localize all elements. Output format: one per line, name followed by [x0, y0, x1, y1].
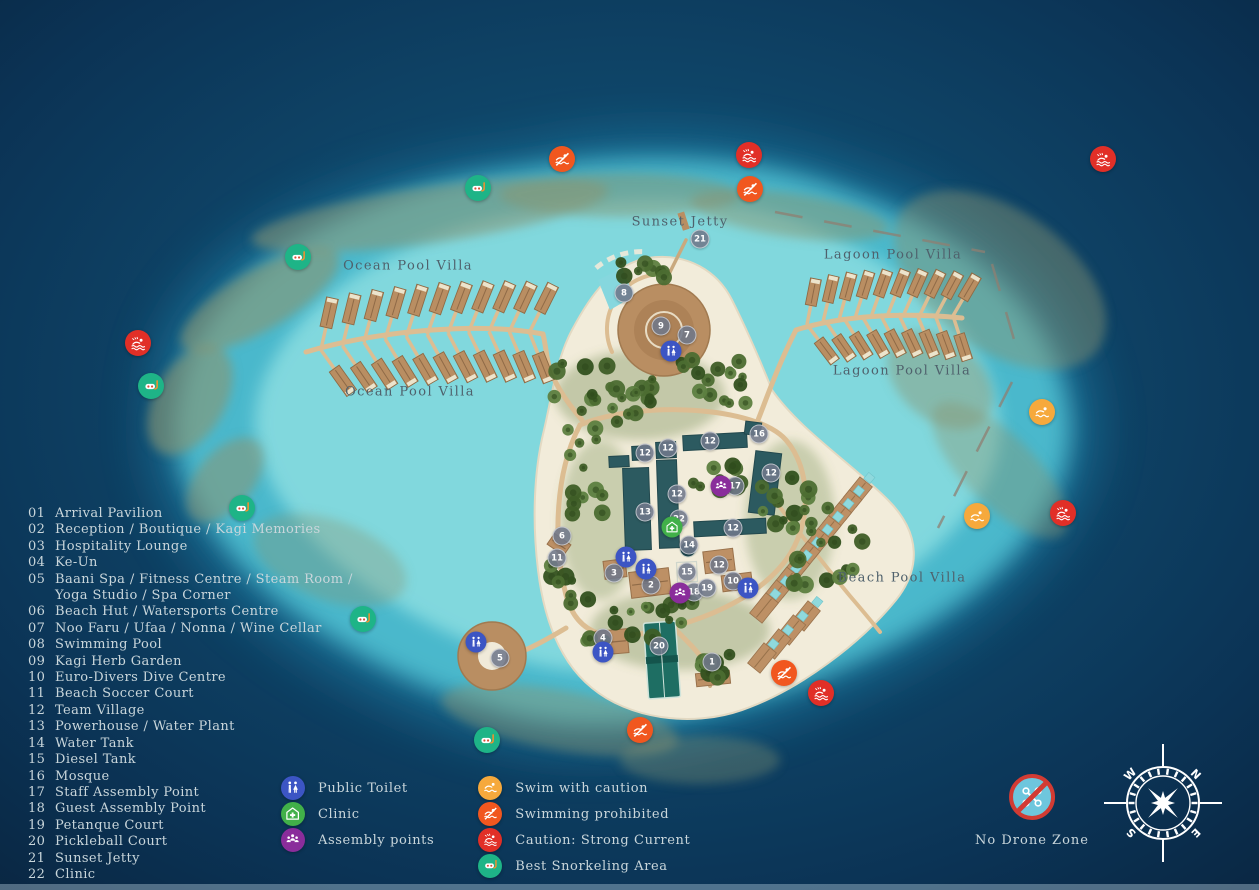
assembly-icon — [281, 828, 305, 852]
legend-item: 14Water Tank — [28, 736, 353, 752]
legend-item-label: Noo Faru / Ufaa / Nonna / Wine Cellar — [55, 621, 322, 637]
snorkel-icon — [350, 606, 376, 632]
legend-item: 04Ke-Un — [28, 555, 353, 571]
snorkel-icon — [138, 373, 164, 399]
toilet-icon — [661, 341, 682, 362]
legend-item-label: Beach Soccer Court — [55, 686, 194, 702]
legend-item-number: 03 — [28, 539, 55, 555]
current-icon — [125, 330, 151, 356]
map-marker-19: 19 — [698, 579, 717, 598]
legend-item-number: 11 — [28, 686, 55, 702]
prohibited-icon — [478, 802, 502, 826]
current-icon — [736, 142, 762, 168]
legend-item-label: Baani Spa / Fitness Centre / Steam Room … — [55, 572, 353, 605]
clinic-icon — [281, 802, 305, 826]
map-label: Ocean Pool Villa — [345, 385, 475, 400]
snorkel-icon — [465, 175, 491, 201]
assembly-icon — [670, 583, 691, 604]
map-marker-20: 20 — [650, 637, 669, 656]
legend-item-label: Powerhouse / Water Plant — [55, 719, 235, 735]
legend-item-number: 05 — [28, 572, 55, 605]
legend-item-number: 14 — [28, 736, 55, 752]
legend-item-label: Team Village — [55, 703, 145, 719]
legend-item-number: 06 — [28, 604, 55, 620]
prohibited-icon — [737, 176, 763, 202]
current-icon — [808, 680, 834, 706]
legend-item: 01Arrival Pavilion — [28, 506, 353, 522]
map-marker-12: 12 — [701, 432, 720, 451]
prohibited-icon — [627, 717, 653, 743]
legend-item: 05Baani Spa / Fitness Centre / Steam Roo… — [28, 572, 353, 605]
key-item-label: Assembly points — [318, 833, 434, 848]
map-label: Lagoon Pool Villa — [824, 248, 962, 263]
legend-item-label: Arrival Pavilion — [55, 506, 163, 522]
toilet-icon — [636, 559, 657, 580]
legend-item: 08Swimming Pool — [28, 637, 353, 653]
map-marker-11: 11 — [548, 549, 567, 568]
legend-item-label: Sunset Jetty — [55, 851, 140, 867]
map-marker-12: 12 — [762, 464, 781, 483]
legend-item-label: Beach Hut / Watersports Centre — [55, 604, 279, 620]
legend-item-number: 18 — [28, 801, 55, 817]
toilet-icon — [466, 632, 487, 653]
legend-item-label: Pickleball Court — [55, 834, 167, 850]
legend-item-number: 04 — [28, 555, 55, 571]
legend-item-label: Swimming Pool — [55, 637, 162, 653]
map-marker-7: 7 — [678, 326, 697, 345]
current-icon — [1090, 146, 1116, 172]
key-item-assembly: Assembly points — [281, 828, 434, 852]
legend-item-number: 07 — [28, 621, 55, 637]
legend-item: 10Euro-Divers Dive Centre — [28, 670, 353, 686]
no-drone-icon — [1009, 774, 1055, 820]
assembly-icon — [711, 476, 732, 497]
map-marker-1: 1 — [703, 653, 722, 672]
key-column: Swim with cautionSwimming prohibitedCaut… — [478, 776, 690, 878]
key-item-label: Clinic — [318, 807, 360, 822]
map-marker-12: 12 — [724, 519, 743, 538]
legend-item-label: Hospitality Lounge — [55, 539, 188, 555]
legend-item-number: 10 — [28, 670, 55, 686]
key-column: Public ToiletClinicAssembly points — [281, 776, 434, 878]
legend-item-number: 16 — [28, 769, 55, 785]
legend-item-number: 01 — [28, 506, 55, 522]
map-marker-13: 13 — [636, 503, 655, 522]
legend-item: 11Beach Soccer Court — [28, 686, 353, 702]
map-marker-16: 16 — [750, 425, 769, 444]
legend-item-number: 22 — [28, 867, 55, 883]
legend-item-number: 13 — [28, 719, 55, 735]
legend-item-number: 02 — [28, 522, 55, 538]
key-item-current: Caution: Strong Current — [478, 828, 690, 852]
key-item-snorkel: Best Snorkeling Area — [478, 854, 690, 878]
toilet-icon — [738, 578, 759, 599]
map-label: Beach Pool Villa — [838, 571, 967, 586]
map-marker-21: 21 — [691, 230, 710, 249]
key-item-toilet: Public Toilet — [281, 776, 434, 800]
map-marker-14: 14 — [680, 536, 699, 555]
toilet-icon — [281, 776, 305, 800]
map-marker-12: 12 — [659, 439, 678, 458]
legend-item-label: Ke-Un — [55, 555, 98, 571]
key-item-label: Swimming prohibited — [515, 807, 669, 822]
legend-item-number: 09 — [28, 654, 55, 670]
legend-item-label: Guest Assembly Point — [55, 801, 206, 817]
island-map: W N E S Sunset JettyOcean Pool VillaOcea… — [0, 0, 1259, 890]
key-item-label: Swim with caution — [515, 781, 648, 796]
legend-item-label: Staff Assembly Point — [55, 785, 199, 801]
legend-item-label: Mosque — [55, 769, 110, 785]
key-item-clinic: Clinic — [281, 802, 434, 826]
legend-item-number: 17 — [28, 785, 55, 801]
snorkel-icon — [474, 727, 500, 753]
clinic-icon — [662, 517, 683, 538]
map-marker-12: 12 — [636, 444, 655, 463]
legend-item: 15Diesel Tank — [28, 752, 353, 768]
no-drone-label: No Drone Zone — [975, 833, 1089, 848]
legend-item-number: 12 — [28, 703, 55, 719]
legend-item-number: 21 — [28, 851, 55, 867]
legend-item: 07Noo Faru / Ufaa / Nonna / Wine Cellar — [28, 621, 353, 637]
caution-icon — [964, 503, 990, 529]
caution-icon — [1029, 399, 1055, 425]
key-item-label: Best Snorkeling Area — [515, 859, 667, 874]
legend-item: 06Beach Hut / Watersports Centre — [28, 604, 353, 620]
legend-item-label: Euro-Divers Dive Centre — [55, 670, 226, 686]
legend-item-label: Water Tank — [55, 736, 134, 752]
key-item-label: Public Toilet — [318, 781, 408, 796]
map-marker-12: 12 — [710, 556, 729, 575]
toilet-icon — [593, 642, 614, 663]
map-marker-9: 9 — [652, 317, 671, 336]
legend-item-number: 20 — [28, 834, 55, 850]
legend-item: 03Hospitality Lounge — [28, 539, 353, 555]
legend-item-label: Reception / Boutique / Kagi Memories — [55, 522, 321, 538]
map-label: Ocean Pool Villa — [343, 259, 473, 274]
current-icon — [478, 828, 502, 852]
map-label: Lagoon Pool Villa — [833, 364, 971, 379]
key-item-prohibited: Swimming prohibited — [478, 802, 690, 826]
map-label: Sunset Jetty — [632, 215, 729, 230]
legend-item-label: Diesel Tank — [55, 752, 136, 768]
legend-item-number: 08 — [28, 637, 55, 653]
legend-item-number: 15 — [28, 752, 55, 768]
legend-item-label: Clinic — [55, 867, 95, 883]
legend-item-label: Kagi Herb Garden — [55, 654, 182, 670]
map-marker-12: 12 — [668, 485, 687, 504]
map-marker-15: 15 — [678, 563, 697, 582]
prohibited-icon — [771, 660, 797, 686]
map-key: Public ToiletClinicAssembly pointsSwim w… — [281, 776, 690, 878]
map-marker-8: 8 — [615, 284, 634, 303]
key-item-label: Caution: Strong Current — [515, 833, 690, 848]
legend-item: 02Reception / Boutique / Kagi Memories — [28, 522, 353, 538]
snorkel-icon — [478, 854, 502, 878]
no-drone-zone-badge: No Drone Zone — [975, 774, 1089, 848]
legend-item: 09Kagi Herb Garden — [28, 654, 353, 670]
snorkel-icon — [285, 244, 311, 270]
legend-item: 12Team Village — [28, 703, 353, 719]
map-marker-5: 5 — [491, 649, 510, 668]
legend-item-label: Petanque Court — [55, 818, 164, 834]
legend-item-number: 19 — [28, 818, 55, 834]
current-icon — [1050, 500, 1076, 526]
key-item-caution: Swim with caution — [478, 776, 690, 800]
bottom-edge-strip — [0, 884, 1259, 890]
prohibited-icon — [549, 146, 575, 172]
caution-icon — [478, 776, 502, 800]
map-marker-6: 6 — [553, 527, 572, 546]
toilet-icon — [616, 547, 637, 568]
legend-item: 13Powerhouse / Water Plant — [28, 719, 353, 735]
